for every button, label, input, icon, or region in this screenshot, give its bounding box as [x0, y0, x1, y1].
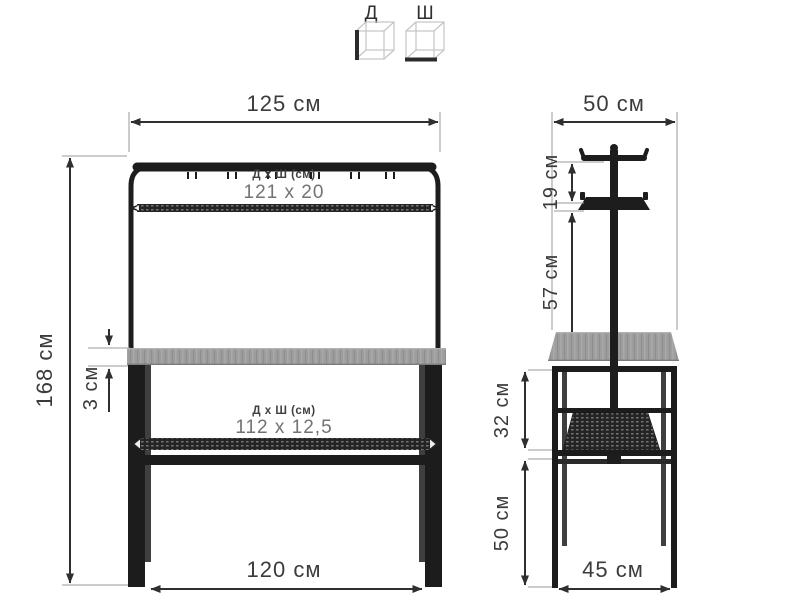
side-mid-rail: [552, 408, 677, 413]
dim-hook-to-tray-label: 19 см: [540, 154, 562, 211]
side-mesh-shelf: [563, 413, 660, 450]
length-cube-icon: Д: [356, 3, 394, 60]
front-legs: [128, 365, 442, 587]
dim-tabletop-thickness-label: 3 см: [80, 366, 102, 410]
dim-front-bottom-width-label: 120 см: [247, 557, 322, 582]
side-front-left-leg: [552, 366, 558, 588]
dim-front-top-width: 125 см: [129, 91, 440, 152]
dim-tabletop-to-rail-label: 32 см: [491, 382, 513, 439]
diagram-svg: Д Ш 125 см: [0, 0, 800, 608]
dim-tabletop-to-rail: 32 см: [491, 370, 552, 450]
front-left-leg: [128, 365, 145, 587]
legend: Д Ш: [356, 3, 444, 60]
dim-tabletop-thickness: 3 см: [80, 329, 130, 412]
dim-front-bottom-width: 120 см: [151, 557, 422, 589]
side-front-right-leg: [671, 366, 677, 588]
top-shelf-size-value: 121 х 20: [244, 182, 325, 203]
pole-foot: [607, 455, 621, 464]
pole-knob: [610, 144, 618, 152]
front-right-leg: [425, 365, 442, 587]
side-top-rail: [552, 366, 677, 372]
width-cube-icon: Ш: [405, 3, 444, 60]
dim-rail-to-floor: 50 см: [491, 459, 552, 587]
pole-through-top: [610, 330, 618, 363]
furniture-dimension-diagram: Д Ш 125 см: [0, 0, 800, 608]
dim-tray-to-tabletop-label: 57 см: [540, 254, 562, 311]
bottom-shelf-size-label: Д х Ш (см): [252, 405, 315, 417]
crossbar: [128, 455, 442, 465]
dim-side-bottom-width: 45 см: [559, 557, 670, 589]
dim-front-height-label: 168 см: [32, 333, 57, 408]
dim-rail-to-floor-label: 50 см: [491, 495, 513, 552]
dim-side-top-width-label: 50 см: [583, 91, 645, 116]
lower-mesh-shelf: [128, 438, 442, 450]
bottom-shelf-size-value: 112 х 12,5: [235, 417, 332, 438]
front-view: 125 см Д х Ш (см) 121 х 20: [32, 91, 446, 589]
width-cube-label: Ш: [416, 3, 433, 24]
side-view: 50 см 19 см 57 см: [491, 91, 679, 589]
length-cube-label: Д: [365, 3, 378, 24]
dim-front-top-width-label: 125 см: [247, 91, 322, 116]
top-shelf-size-label: Д х Ш (см): [252, 169, 315, 181]
dim-tray-to-tabletop: 57 см: [540, 211, 584, 351]
dim-side-bottom-width-label: 45 см: [582, 557, 644, 582]
tabletop-front: [127, 348, 446, 365]
tabletop-side: [548, 330, 679, 363]
upper-mesh-shelf: [129, 204, 441, 212]
